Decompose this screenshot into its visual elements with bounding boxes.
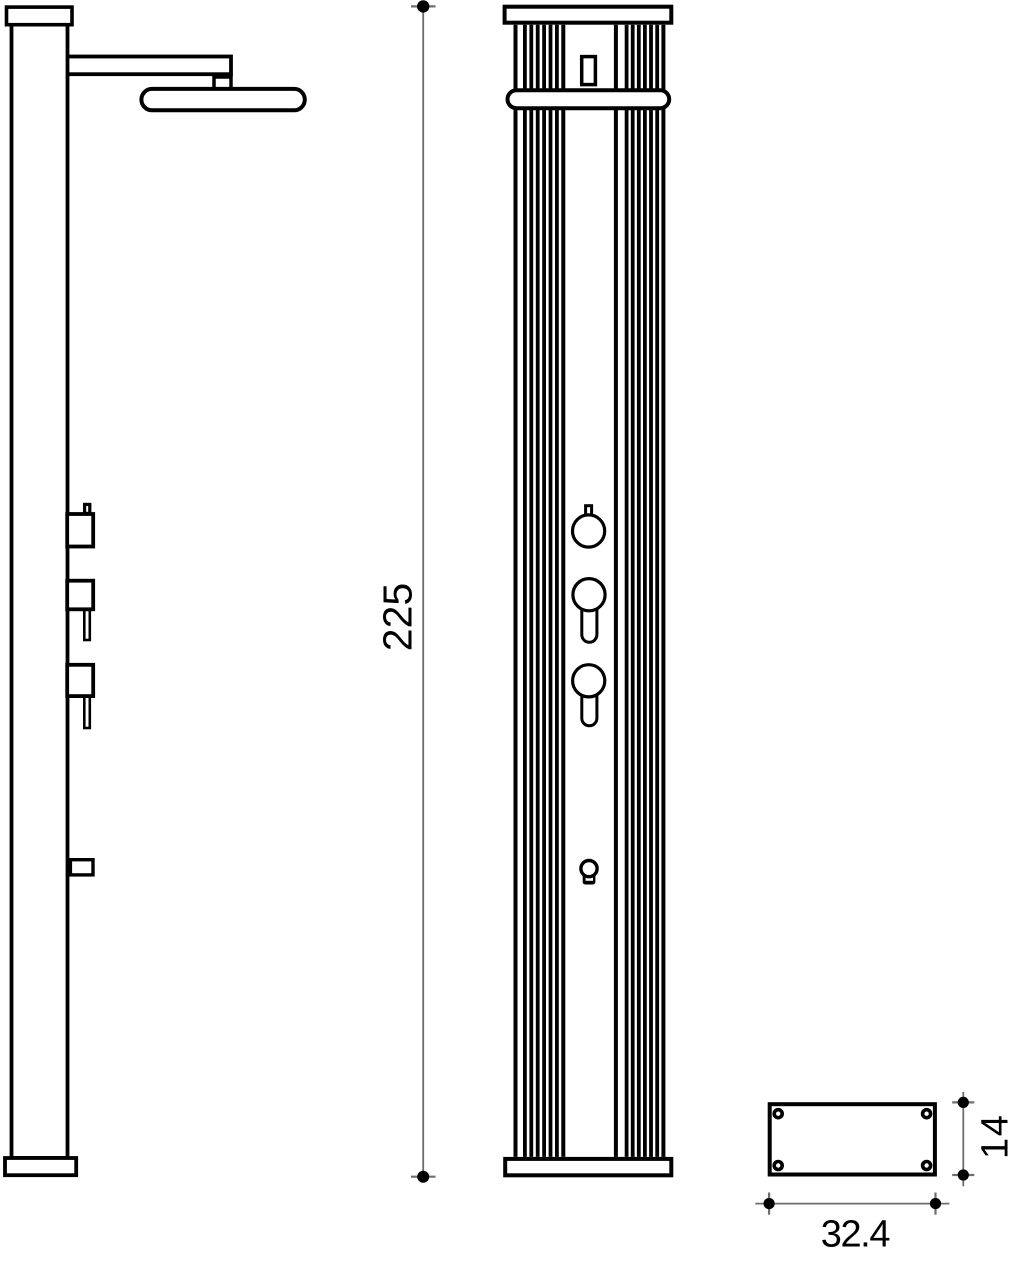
svg-text:32.4: 32.4 [821,1213,891,1255]
svg-text:225: 225 [375,583,421,651]
svg-text:14: 14 [974,1114,1016,1159]
